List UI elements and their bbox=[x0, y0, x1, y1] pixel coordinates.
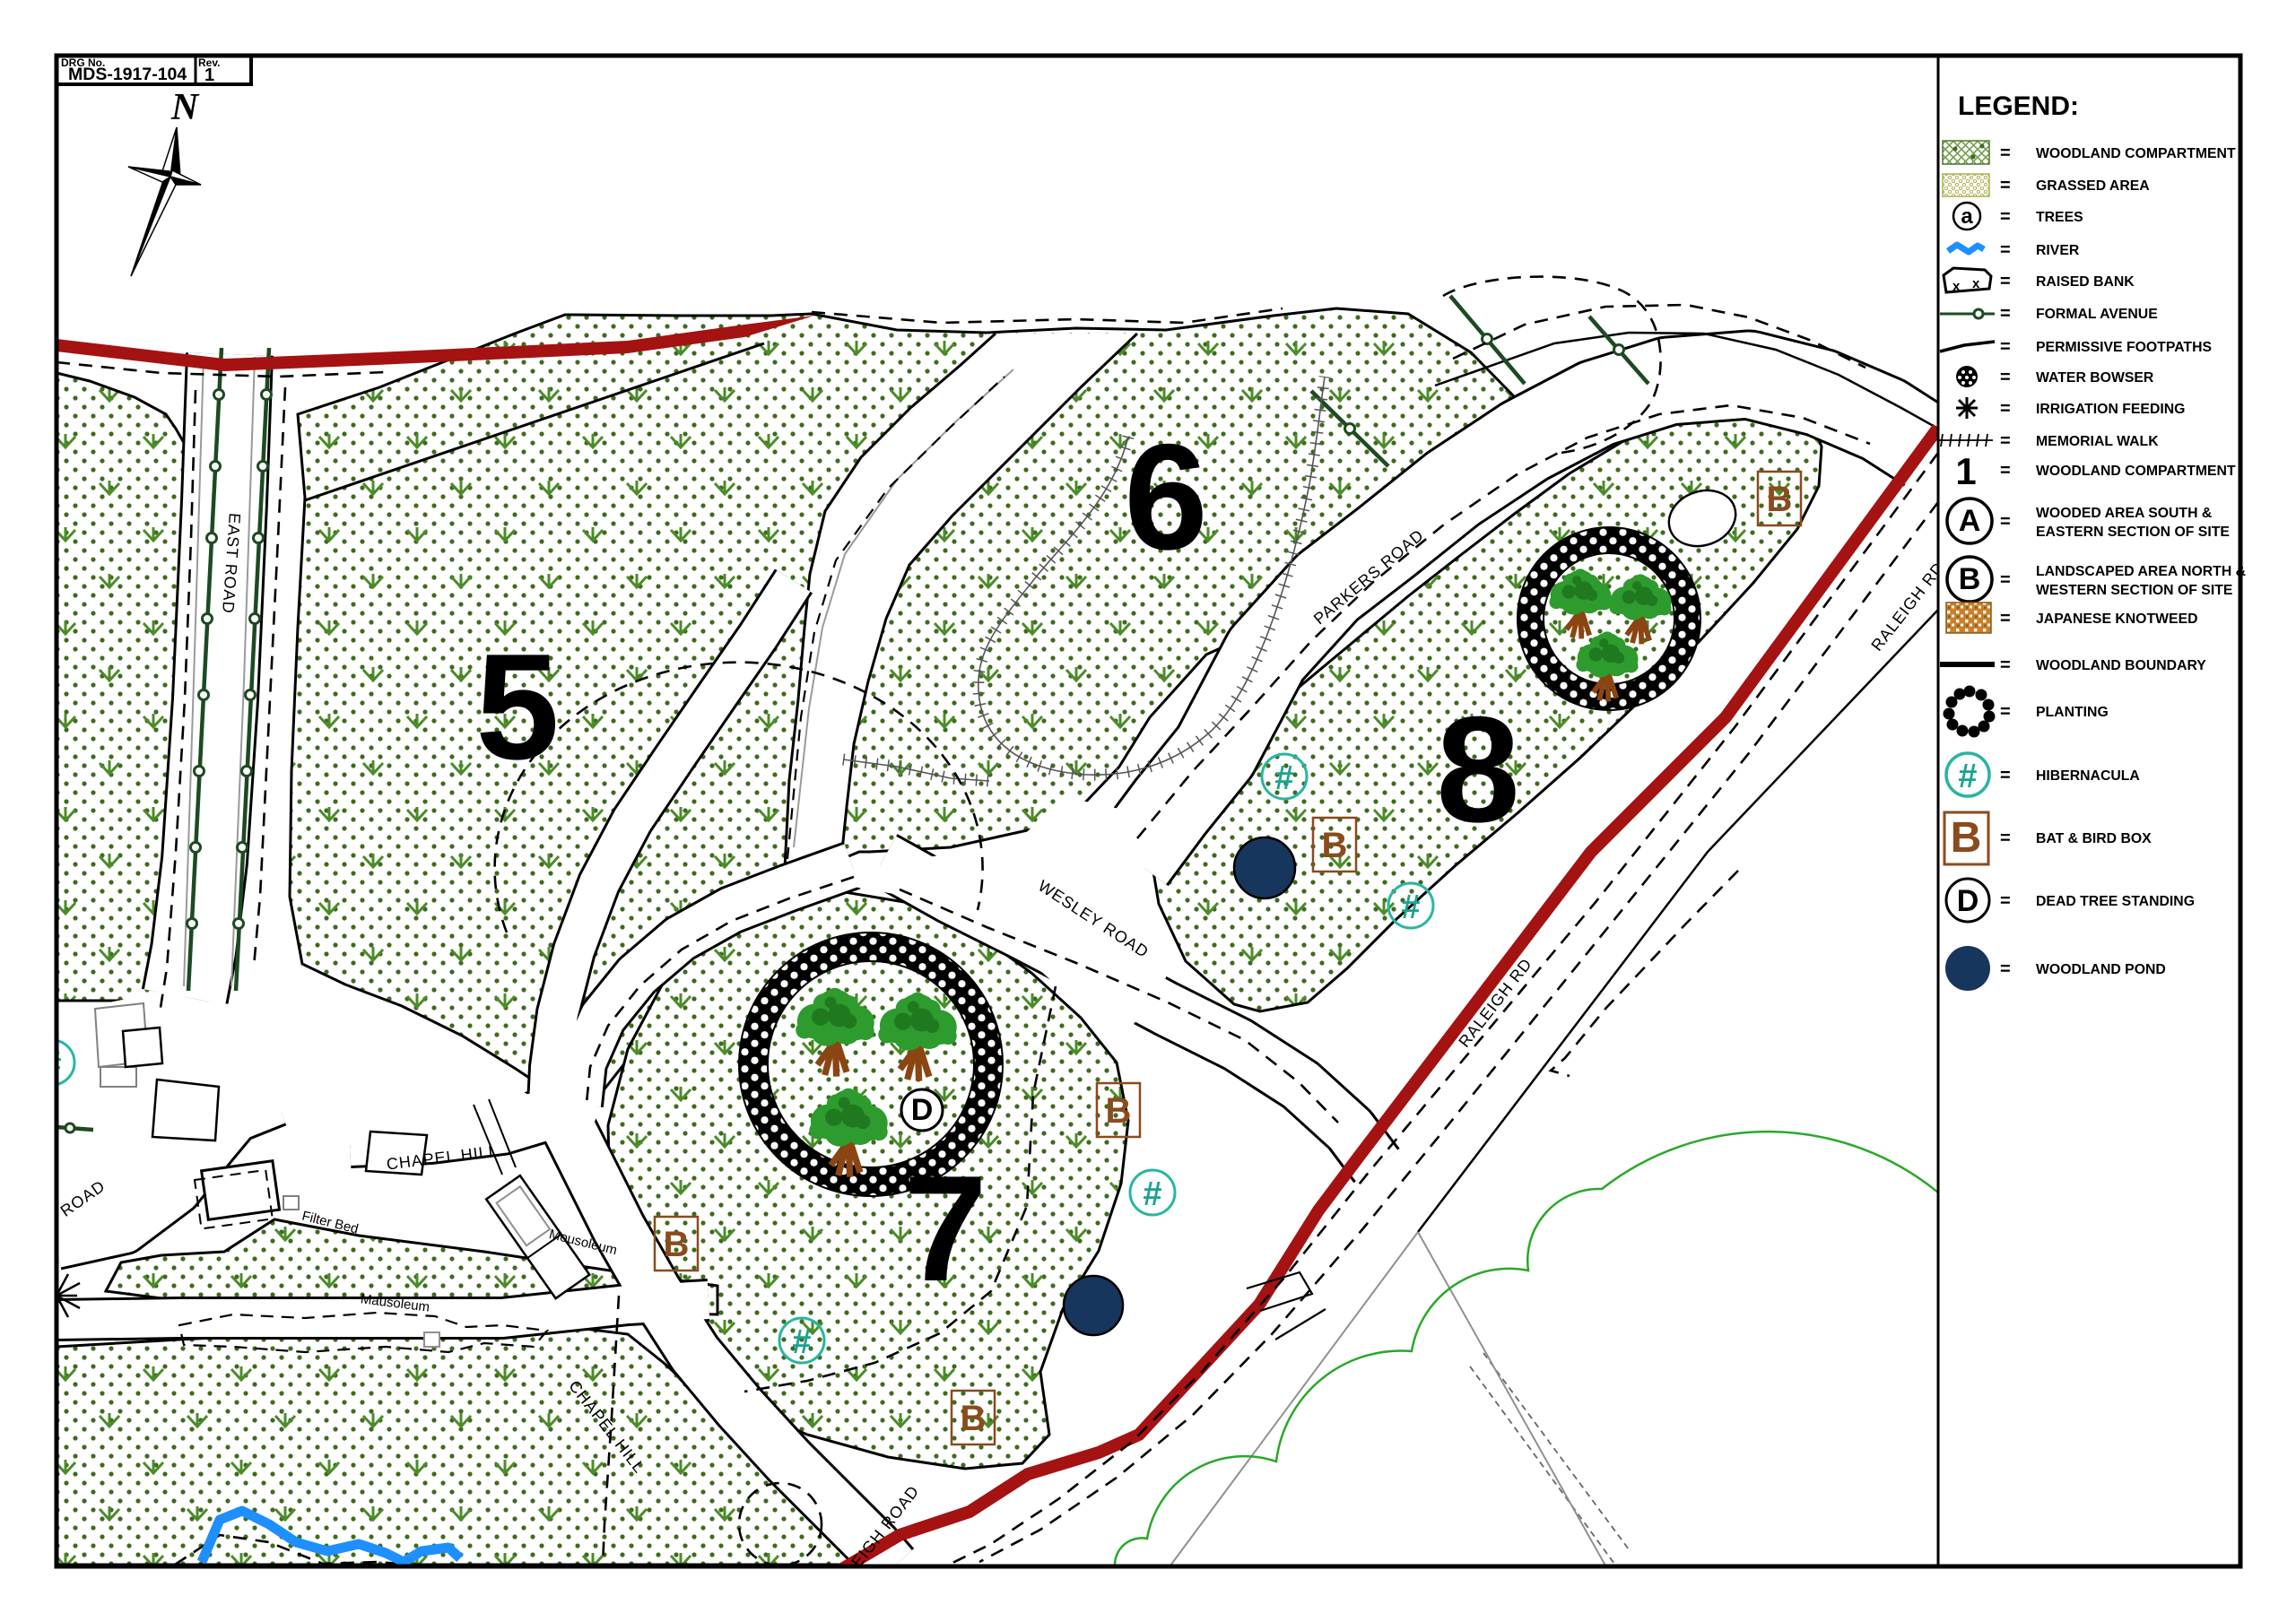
svg-text:=: = bbox=[2000, 143, 2011, 163]
svg-text:=: = bbox=[2000, 431, 2011, 451]
svg-text:=: = bbox=[2000, 570, 2011, 590]
svg-text:WOODLAND POND: WOODLAND POND bbox=[2036, 962, 2166, 977]
svg-text:GRASSED AREA: GRASSED AREA bbox=[2036, 178, 2150, 194]
svg-text:=: = bbox=[2000, 399, 2011, 419]
svg-text:B: B bbox=[961, 1399, 987, 1438]
svg-text:=: = bbox=[2000, 891, 2011, 911]
svg-text:=: = bbox=[2000, 304, 2011, 324]
svg-text:a: a bbox=[1961, 204, 1973, 229]
svg-text:=: = bbox=[2000, 512, 2011, 532]
svg-text:RIVER: RIVER bbox=[2036, 243, 2080, 258]
svg-text:B: B bbox=[1951, 814, 1982, 862]
svg-text:LEGEND:: LEGEND: bbox=[1958, 91, 2079, 121]
svg-text:JAPANESE KNOTWEED: JAPANESE KNOTWEED bbox=[2036, 612, 2198, 627]
svg-text:=: = bbox=[2000, 766, 2011, 785]
svg-text:x: x bbox=[1952, 279, 1961, 294]
svg-text:=: = bbox=[2000, 609, 2011, 629]
svg-text:=: = bbox=[2000, 828, 2011, 848]
svg-text:WOODLAND COMPARTMENT: WOODLAND COMPARTMENT bbox=[2036, 464, 2236, 479]
svg-text:#: # bbox=[792, 1323, 811, 1361]
svg-text:PLANTING: PLANTING bbox=[2036, 705, 2109, 720]
svg-text:RAISED BANK: RAISED BANK bbox=[2036, 274, 2135, 290]
svg-text:#: # bbox=[1143, 1175, 1161, 1213]
svg-text:D: D bbox=[911, 1093, 934, 1127]
svg-text:5: 5 bbox=[475, 622, 559, 791]
svg-text:8: 8 bbox=[1436, 685, 1519, 854]
svg-text:MEMORIAL WALK: MEMORIAL WALK bbox=[2036, 434, 2159, 449]
svg-text:=: = bbox=[2000, 240, 2011, 260]
svg-text:MDS-1917-104: MDS-1917-104 bbox=[68, 65, 187, 84]
svg-text:EASTERN SECTION OF SITE: EASTERN SECTION OF SITE bbox=[2036, 525, 2230, 540]
svg-text:D: D bbox=[1957, 884, 1979, 918]
svg-text:A: A bbox=[1959, 504, 1981, 538]
svg-text:WESTERN SECTION OF SITE: WESTERN SECTION OF SITE bbox=[2036, 583, 2232, 598]
svg-text:=: = bbox=[2000, 461, 2011, 481]
svg-text:=: = bbox=[2000, 702, 2011, 722]
svg-text:B: B bbox=[1106, 1091, 1132, 1131]
svg-text:N: N bbox=[170, 87, 200, 128]
svg-text:=: = bbox=[2000, 272, 2011, 291]
svg-text:FORMAL AVENUE: FORMAL AVENUE bbox=[2036, 307, 2158, 322]
svg-text:B: B bbox=[664, 1225, 690, 1264]
svg-text:=: = bbox=[2000, 176, 2011, 195]
svg-text:PERMISSIVE FOOTPATHS: PERMISSIVE FOOTPATHS bbox=[2036, 340, 2212, 355]
svg-text:BAT & BIRD BOX: BAT & BIRD BOX bbox=[2036, 831, 2152, 846]
svg-text:=: = bbox=[2000, 655, 2011, 675]
svg-text:DEAD TREE STANDING: DEAD TREE STANDING bbox=[2036, 894, 2195, 909]
svg-text:B: B bbox=[1959, 562, 1981, 596]
svg-text:=: = bbox=[2000, 337, 2011, 357]
svg-text:TREES: TREES bbox=[2036, 210, 2083, 225]
svg-text:=: = bbox=[2000, 959, 2011, 979]
svg-text:#: # bbox=[1958, 758, 1977, 795]
svg-text:x: x bbox=[1972, 276, 1980, 291]
svg-text:LANDSCAPED AREA NORTH &: LANDSCAPED AREA NORTH & bbox=[2036, 564, 2246, 579]
svg-text:B: B bbox=[1767, 480, 1793, 519]
svg-text:#: # bbox=[1401, 889, 1420, 926]
svg-text:B: B bbox=[1322, 826, 1348, 865]
svg-text:=: = bbox=[2000, 207, 2011, 227]
svg-text:WOODLAND BOUNDARY: WOODLAND BOUNDARY bbox=[2036, 658, 2206, 673]
svg-text:WOODLAND COMPARTMENT: WOODLAND COMPARTMENT bbox=[2036, 146, 2236, 161]
svg-text:6: 6 bbox=[1124, 412, 1207, 581]
svg-text:=: = bbox=[2000, 368, 2011, 387]
svg-text:7: 7 bbox=[903, 1144, 987, 1313]
svg-text:HIBERNACULA: HIBERNACULA bbox=[2036, 768, 2140, 784]
svg-text:WOODED AREA SOUTH &: WOODED AREA SOUTH & bbox=[2036, 506, 2212, 521]
svg-text:1: 1 bbox=[204, 65, 214, 85]
svg-text:1: 1 bbox=[1955, 450, 1976, 492]
svg-text:IRRIGATION FEEDING: IRRIGATION FEEDING bbox=[2036, 402, 2185, 417]
svg-text:#: # bbox=[1274, 759, 1293, 797]
svg-text:WATER BOWSER: WATER BOWSER bbox=[2036, 370, 2154, 386]
